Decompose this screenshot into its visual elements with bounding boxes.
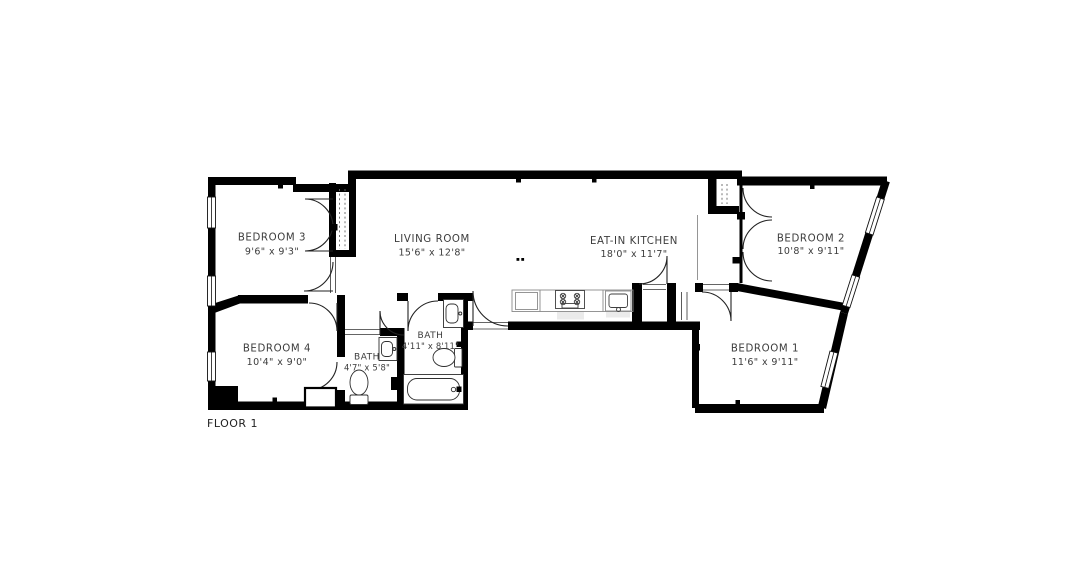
door-swing-icon (305, 199, 333, 227)
window-icon (208, 276, 216, 306)
door-swing-icon (305, 223, 333, 251)
room-name: EAT-IN KITCHEN (590, 236, 678, 247)
room-name: BEDROOM 2 (777, 234, 845, 245)
room-label-bath-2: BATH 4'11" x 8'11" (402, 331, 459, 351)
closets (305, 184, 727, 408)
door-swing-icon (408, 301, 438, 331)
vanity-sink-icon (444, 300, 464, 328)
room-name: BEDROOM 1 (731, 344, 799, 355)
door-swing-icon (743, 252, 772, 281)
room-dims: 15'6" x 12'8" (398, 248, 465, 259)
room-dims: 4'7" x 5'8" (344, 363, 390, 373)
floor-plan-canvas: BEDROOM 3 9'6" x 9'3" LIVING ROOM 15'6" … (0, 0, 1080, 580)
room-dims: 9'6" x 9'3" (245, 247, 299, 258)
floor-label: FLOOR 1 (207, 417, 258, 430)
door-swing-icon (639, 256, 667, 284)
door-swing-icon (702, 292, 731, 321)
room-name: BEDROOM 4 (243, 344, 311, 355)
window-icon (208, 352, 216, 381)
door-swing-icon (309, 362, 337, 390)
room-label-eat-in-kitchen: EAT-IN KITCHEN 18'0" x 11'7" (590, 236, 678, 260)
closet-icon (682, 292, 688, 320)
kitchen-sink-icon (606, 291, 632, 312)
room-name: BATH (418, 331, 444, 341)
room-dims: 10'8" x 9'11" (777, 246, 844, 257)
room-dims: 10'4" x 9'0" (247, 357, 308, 368)
room-name: LIVING ROOM (394, 234, 470, 245)
closet-icon (722, 184, 727, 204)
room-label-bedroom-1: BEDROOM 1 11'6" x 9'11" (731, 344, 799, 369)
walls (208, 171, 890, 414)
door-swing-icon (743, 220, 772, 249)
toilet-icon (433, 349, 462, 368)
room-dims: 4'11" x 8'11" (402, 341, 459, 351)
room-dims: 18'0" x 11'7" (600, 249, 667, 260)
window-icon (865, 197, 884, 235)
room-name: BEDROOM 3 (238, 233, 306, 244)
room-label-bedroom-3: BEDROOM 3 9'6" x 9'3" (238, 233, 306, 258)
door-swing-icon (304, 262, 333, 291)
closet-icon (340, 189, 346, 249)
floorplan-page: BEDROOM 3 9'6" x 9'3" LIVING ROOM 15'6" … (0, 0, 1080, 580)
room-dims: 11'6" x 9'11" (731, 357, 798, 368)
vanity-sink-icon (379, 338, 397, 361)
room-label-bedroom-2: BEDROOM 2 10'8" x 9'11" (777, 234, 845, 258)
window-icon (821, 351, 838, 388)
toilet-icon (350, 370, 368, 405)
door-swing-icon (743, 188, 772, 217)
bathtub-icon (404, 375, 464, 405)
window-icon (842, 275, 859, 308)
door-swing-icon (473, 291, 508, 326)
room-name: BATH (354, 353, 380, 363)
door-swing-icon (309, 303, 337, 331)
room-label-living-room: LIVING ROOM 15'6" x 12'8" (394, 234, 470, 259)
window-icon (208, 197, 216, 228)
closet-icon (305, 388, 336, 408)
room-label-bedroom-4: BEDROOM 4 10'4" x 9'0" (243, 344, 311, 369)
room-labels: BEDROOM 3 9'6" x 9'3" LIVING ROOM 15'6" … (238, 233, 845, 373)
stove-icon (556, 291, 585, 309)
